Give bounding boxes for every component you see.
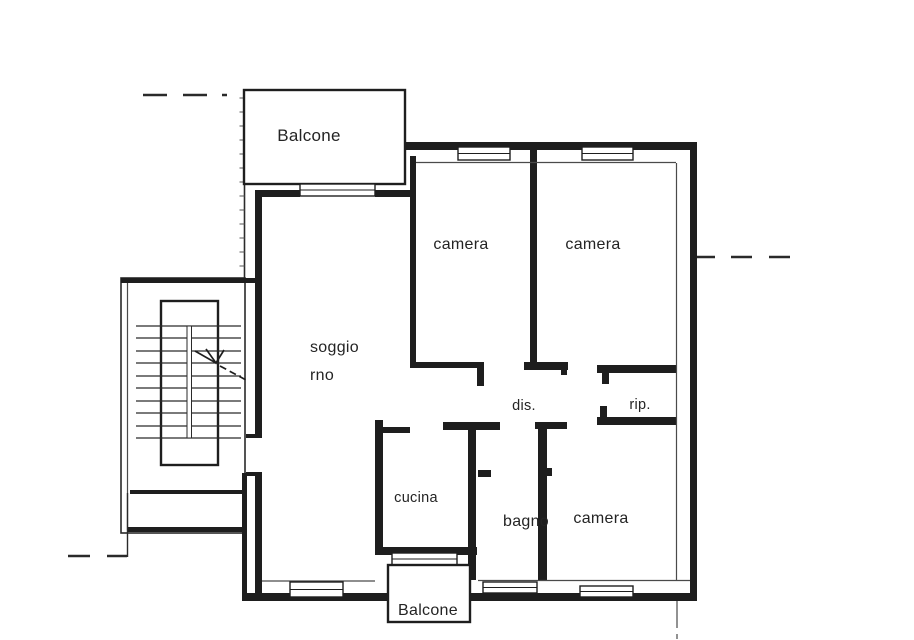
floor-plan-drawing: Balcone [0, 0, 914, 640]
living-room-label-line1: soggio [310, 339, 359, 356]
wall-bedroom1-bottom [410, 362, 477, 368]
wall-bath-bedroom3 [538, 429, 547, 580]
stairwell-top-wall [121, 278, 255, 283]
window-bathroom-bottom [483, 582, 537, 593]
wall-living-top-right [375, 190, 410, 197]
balcony-bottom: Balcone [388, 553, 470, 622]
window-bedroom3-bottom [580, 586, 633, 597]
wall-storage-top [597, 365, 677, 373]
floor-plan-page: Balcone [0, 0, 914, 640]
doorjamb-bedroom3 [538, 468, 552, 476]
window-bedroom1-top [458, 147, 510, 160]
living-room-label-line2: rno [310, 367, 334, 384]
hallway-label: dis. [512, 398, 536, 414]
balcony-bottom-label: Balcone [398, 602, 458, 619]
doorjamb-bedroom1 [477, 362, 484, 386]
window-kitchen-balcony [392, 553, 457, 565]
wall-bath-bedroom3-cap [535, 422, 567, 429]
window-bedroom2-top [582, 147, 633, 160]
doorjamb-bedroom2 [561, 362, 567, 375]
windows [290, 147, 633, 597]
wall-bedroom1-left [410, 156, 416, 368]
staircase [121, 278, 255, 557]
window-balcony-living [300, 184, 375, 196]
landing-wall-upper [130, 490, 242, 494]
wall-kitchen-bath-cap [443, 422, 500, 430]
landing-wall-lower [127, 527, 242, 532]
wall-right [690, 142, 697, 601]
wall-kitchen-top [377, 427, 410, 433]
wall-storage-bottom [597, 417, 677, 425]
doorjamb-bath-left [478, 470, 491, 477]
bedroom-top-right-label: camera [565, 236, 620, 253]
wall-between-bedrooms [530, 150, 537, 364]
bedroom-bottom-label: camera [573, 510, 628, 527]
window-living-bottom [290, 582, 343, 597]
bathroom-label: bagno [503, 513, 549, 530]
bedroom-top-left-label: camera [433, 236, 488, 253]
wall-living-top-left [255, 190, 300, 197]
wall-living-left [255, 190, 262, 601]
wall-kitchen-bath [468, 430, 476, 580]
wall-landing-side [242, 473, 247, 601]
kitchen-label: cucina [394, 490, 438, 506]
entrance-door [246, 434, 263, 476]
storage-label: rip. [629, 397, 650, 413]
wall-top [405, 142, 697, 150]
stairwell-outline [121, 278, 245, 533]
balcony-top: Balcone [244, 90, 405, 184]
doorjamb-storage-top [602, 373, 609, 384]
wall-kitchen-left [375, 420, 383, 555]
doorjamb-storage-bottom [600, 406, 607, 417]
stair-stringer [187, 326, 192, 438]
balcony-top-label: Balcone [277, 126, 341, 145]
